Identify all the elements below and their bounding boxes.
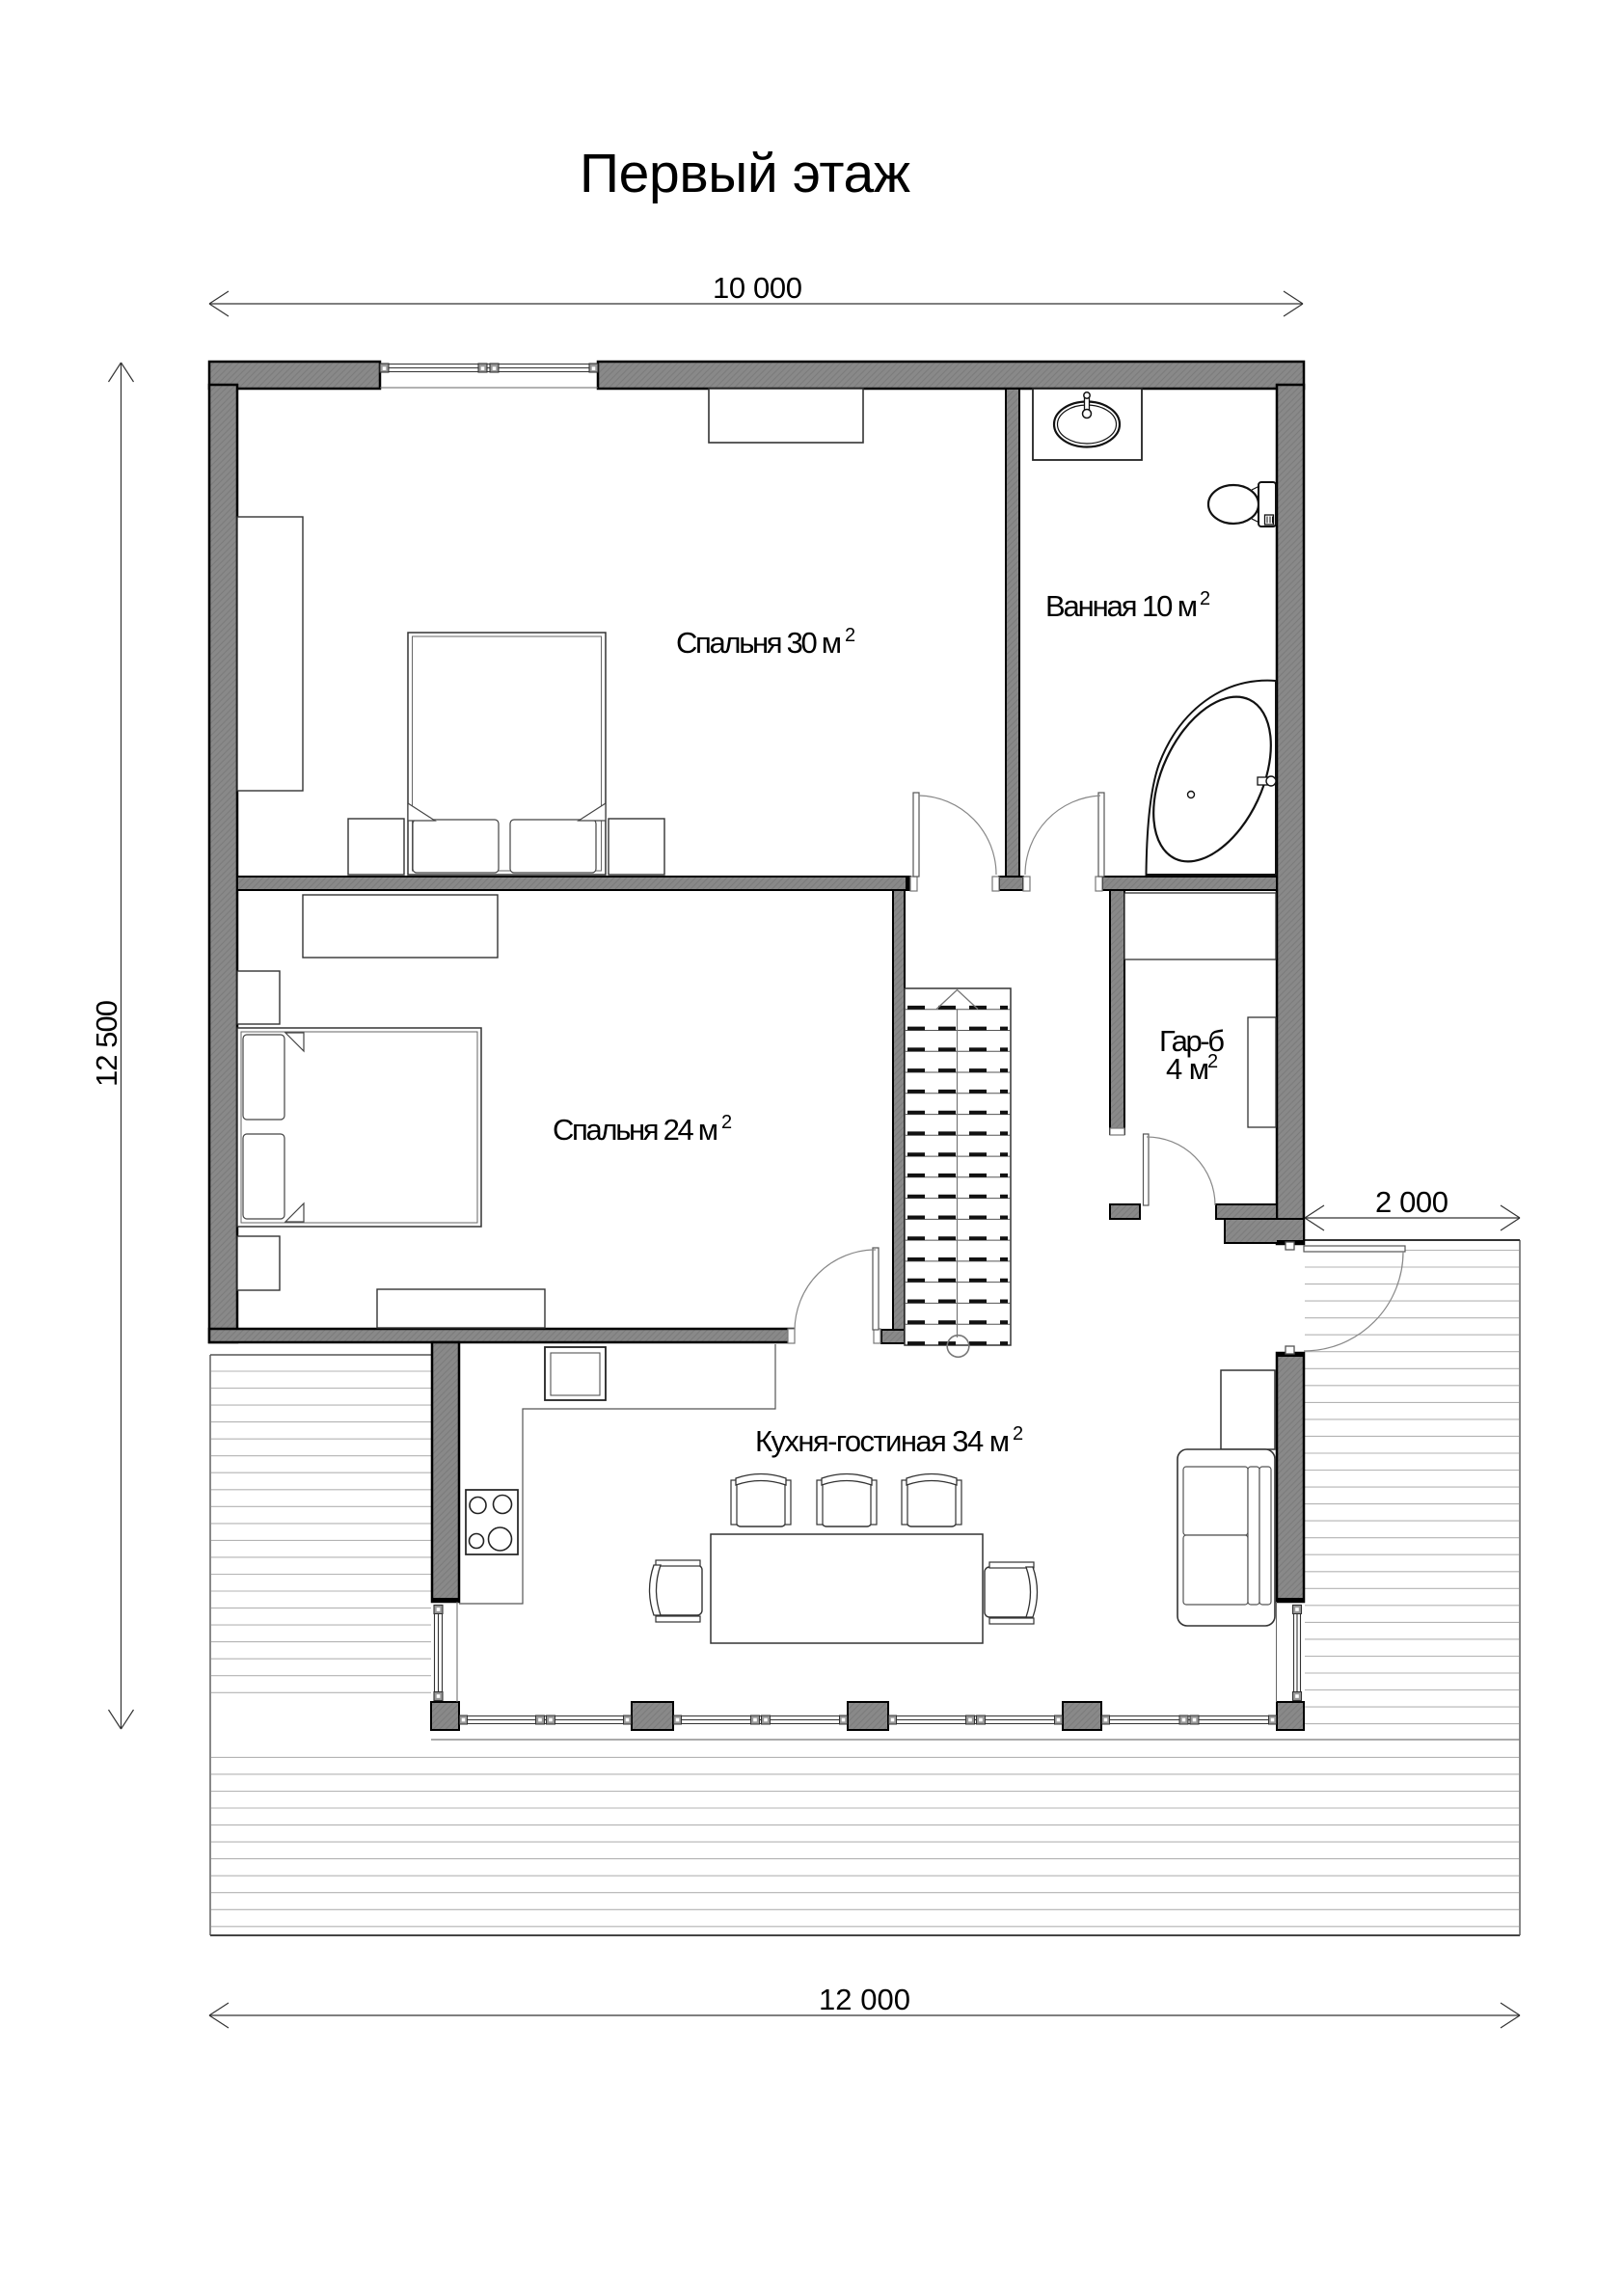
svg-text:2: 2 xyxy=(1200,588,1210,609)
svg-text:Спальня 24 м: Спальня 24 м xyxy=(553,1113,718,1147)
svg-text:2: 2 xyxy=(1013,1423,1023,1445)
svg-text:2 000: 2 000 xyxy=(1375,1185,1448,1219)
svg-text:10 000: 10 000 xyxy=(713,271,802,305)
svg-text:Кухня-гостиная 34 м: Кухня-гостиная 34 м xyxy=(755,1424,1010,1458)
svg-text:Спальня 30 м: Спальня 30 м xyxy=(676,626,842,660)
svg-text:Ванная 10 м: Ванная 10 м xyxy=(1045,589,1198,623)
svg-text:2: 2 xyxy=(721,1112,732,1133)
svg-text:12 500: 12 500 xyxy=(90,1000,123,1087)
svg-text:2: 2 xyxy=(1207,1051,1218,1072)
svg-text:2: 2 xyxy=(845,625,855,646)
svg-text:4 м: 4 м xyxy=(1166,1052,1209,1086)
svg-text:Первый этаж: Первый этаж xyxy=(580,143,910,204)
svg-text:12 000: 12 000 xyxy=(819,1983,910,2016)
